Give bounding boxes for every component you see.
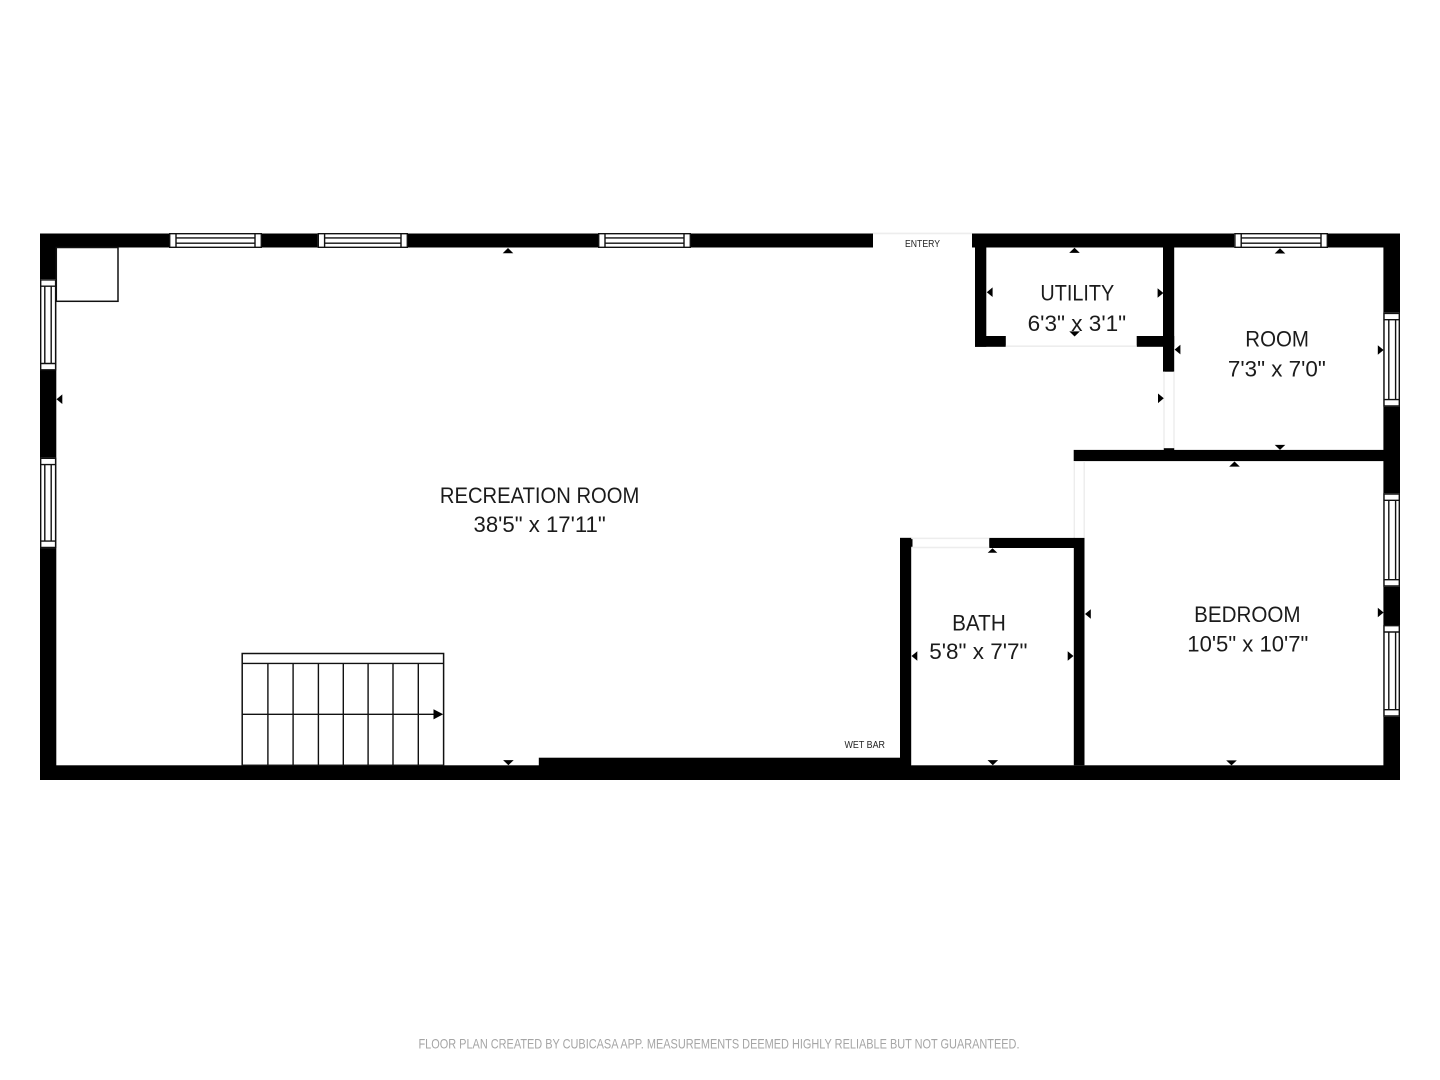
svg-text:38'5" x 17'11": 38'5" x 17'11" <box>474 512 606 537</box>
svg-text:FLOOR PLAN CREATED BY CUBICASA: FLOOR PLAN CREATED BY CUBICASA APP. MEAS… <box>419 1035 1020 1051</box>
svg-text:6'3" x 3'1": 6'3" x 3'1" <box>1028 311 1127 336</box>
svg-text:ENTERY: ENTERY <box>905 239 940 250</box>
svg-text:WET BAR: WET BAR <box>845 740 886 751</box>
svg-text:10'5" x 10'7": 10'5" x 10'7" <box>1187 632 1308 657</box>
svg-text:ROOM: ROOM <box>1245 327 1309 352</box>
svg-text:BATH: BATH <box>952 610 1006 635</box>
svg-text:BEDROOM: BEDROOM <box>1194 602 1301 627</box>
svg-text:7'3" x 7'0": 7'3" x 7'0" <box>1228 356 1326 381</box>
svg-text:UTILITY: UTILITY <box>1040 281 1114 306</box>
svg-text:RECREATION ROOM: RECREATION ROOM <box>440 483 639 508</box>
svg-text:5'8" x 7'7": 5'8" x 7'7" <box>929 639 1027 664</box>
